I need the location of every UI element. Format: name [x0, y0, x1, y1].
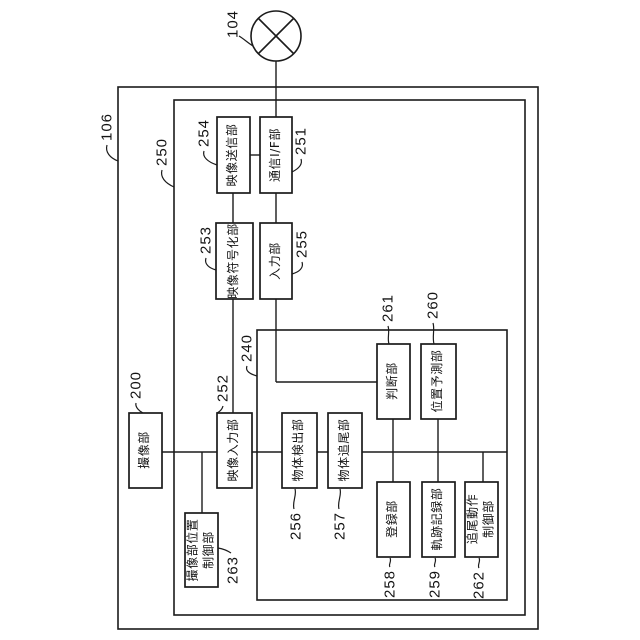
leader-262: [478, 558, 479, 568]
leader-106: [107, 145, 118, 161]
ref-260: 260: [425, 291, 442, 319]
block-label-258: 登録部: [385, 500, 401, 538]
ref-262: 262: [471, 571, 488, 599]
block-label-254: 映像送信部: [225, 123, 241, 186]
ref-255: 255: [294, 230, 311, 258]
ref-200: 200: [128, 371, 145, 399]
block-label-251: 通信I/F部: [268, 128, 284, 182]
leader-261: [388, 326, 389, 344]
ref-261: 261: [380, 294, 397, 322]
leader-258: [389, 558, 390, 567]
block-label-260: 位置予測部: [430, 349, 446, 412]
ref-256: 256: [288, 512, 305, 540]
network-node-icon: [251, 11, 301, 61]
ref-240: 240: [239, 334, 256, 362]
leader-250: [162, 170, 174, 187]
ref-252: 252: [215, 374, 232, 402]
ref-106: 106: [99, 113, 116, 141]
ref-259: 259: [427, 570, 444, 598]
block-label-255: 入力部: [268, 242, 284, 280]
leader-240: [247, 366, 257, 376]
block-label-257: 物体追尾部: [337, 418, 353, 481]
diagram-linework: [0, 0, 640, 640]
ref-104: 104: [225, 10, 242, 38]
block-label-256: 物体検出部: [291, 418, 307, 481]
leader-263: [218, 548, 231, 553]
block-label-200: 撮像部: [137, 431, 153, 469]
patent-block-diagram: 撮像部 撮像部位置 制御部 映像入力部 映像送信部 通信I/F部 映像符号化部 …: [0, 0, 640, 640]
block-label-253: 映像符号化部: [226, 223, 242, 299]
block-label-261: 判断部: [385, 362, 401, 400]
ref-258: 258: [382, 570, 399, 598]
ref-254: 254: [196, 119, 213, 147]
leader-257: [339, 489, 341, 509]
leader-200: [136, 403, 143, 413]
leader-256: [294, 489, 296, 509]
leader-252: [217, 406, 223, 413]
leader-254: [204, 151, 217, 165]
ref-257: 257: [332, 512, 349, 540]
ref-253: 253: [198, 226, 215, 254]
leader-251: [292, 159, 301, 172]
leader-260: [433, 323, 434, 344]
leader-253: [206, 258, 216, 270]
block-label-252: 映像入力部: [226, 418, 242, 481]
block-label-262: 追尾動作 制御部: [465, 494, 496, 544]
ref-251: 251: [293, 127, 310, 155]
ref-263: 263: [225, 556, 242, 584]
leader-255: [292, 262, 302, 274]
ref-250: 250: [154, 138, 171, 166]
block-label-259: 軌跡記録部: [430, 487, 446, 550]
block-label-263: 撮像部位置 制御部: [185, 518, 216, 581]
leader-259: [434, 558, 435, 567]
